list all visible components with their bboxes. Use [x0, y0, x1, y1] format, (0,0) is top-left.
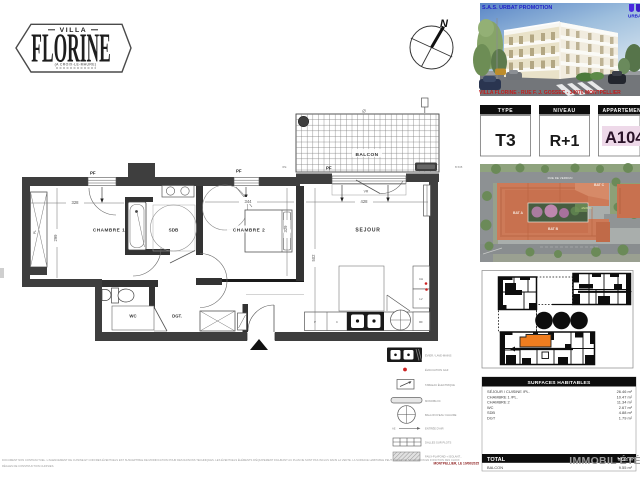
svg-text:BALCON: BALCON	[487, 465, 503, 470]
svg-text:4.88 m²: 4.88 m²	[619, 410, 633, 415]
svg-text:T3: T3	[495, 130, 516, 150]
svg-text:SURFACES HABITABLES: SURFACES HABITABLES	[528, 380, 591, 386]
svg-text:JARDIN: JARDIN	[581, 206, 592, 210]
svg-text:344: 344	[245, 199, 253, 204]
svg-text:FAUX-PLAFOND + ISOLANT...: FAUX-PLAFOND + ISOLANT...	[425, 455, 462, 459]
svg-text:BALLON D'EAU CHAUDE: BALLON D'EAU CHAUDE	[425, 413, 457, 417]
svg-text:299: 299	[53, 234, 58, 242]
svg-text:428: 428	[361, 199, 369, 204]
svg-text:S.A.S. URBAT PROMOTION: S.A.S. URBAT PROMOTION	[482, 5, 552, 11]
svg-text:A104: A104	[605, 129, 640, 147]
svg-text:R+1: R+1	[550, 133, 580, 150]
svg-text:11.34 m²: 11.34 m²	[617, 400, 633, 405]
svg-text:MONTPELLIER, LE 10/06/2025: MONTPELLIER, LE 10/06/2025	[433, 462, 479, 466]
svg-text:PF: PF	[236, 169, 242, 174]
svg-text:MONOBLOC: MONOBLOC	[425, 399, 441, 403]
svg-text:BAT A: BAT A	[513, 211, 524, 215]
svg-text:BALCON: BALCON	[356, 152, 379, 158]
svg-text:BAT C: BAT C	[594, 183, 605, 187]
svg-text:LV: LV	[419, 297, 422, 301]
svg-text:AE: AE	[392, 427, 396, 431]
svg-text:57.61 m²: 57.61 m²	[618, 457, 635, 462]
svg-text:328: 328	[72, 200, 80, 205]
svg-text:IPE: IPE	[282, 165, 287, 169]
svg-text:APPARTEMENT: APPARTEMENT	[602, 108, 640, 114]
svg-text:26.46 m²: 26.46 m²	[617, 389, 633, 394]
svg-text:DALLES SUR PLOTS: DALLES SUR PLOTS	[425, 441, 451, 445]
svg-text:329: 329	[283, 225, 288, 233]
svg-text:CHAMBRE 2: CHAMBRE 2	[233, 228, 265, 233]
svg-text:TOTAL: TOTAL	[487, 457, 506, 463]
svg-text:VILLA FLORINE - RUE F. J. GOSS: VILLA FLORINE - RUE F. J. GOSSEC - 34070…	[479, 90, 621, 96]
svg-text:BAT B: BAT B	[548, 227, 559, 231]
svg-text:502: 502	[311, 254, 316, 262]
svg-text:SÉJOUR / CUISINE /PL.: SÉJOUR / CUISINE /PL.	[487, 389, 530, 394]
svg-text:WC: WC	[487, 405, 494, 410]
svg-text:WC: WC	[129, 314, 136, 319]
svg-text:RUE DE VERDUN: RUE DE VERDUN	[548, 176, 573, 180]
svg-text:CHAMBRE 2: CHAMBRE 2	[487, 400, 510, 405]
svg-text:SDB: SDB	[487, 410, 495, 415]
svg-text:2.67 m²: 2.67 m²	[619, 405, 633, 410]
svg-text:PF: PF	[326, 166, 332, 171]
svg-text:SEJOUR: SEJOUR	[355, 228, 380, 234]
svg-text:10.47 m²: 10.47 m²	[617, 394, 633, 399]
svg-text:CH: CH	[419, 277, 423, 281]
svg-text:NIVEAU: NIVEAU	[553, 108, 576, 114]
svg-text:(A CROIX-LE-MAURE): (A CROIX-LE-MAURE)	[55, 63, 97, 67]
svg-text:RF: RF	[419, 320, 423, 324]
svg-text:CHAMBRE 1: CHAMBRE 1	[93, 228, 125, 233]
svg-text:9.55 m²: 9.55 m²	[619, 465, 633, 470]
svg-text:N: N	[440, 18, 449, 30]
svg-text:VR: VR	[364, 190, 369, 194]
svg-text:SDB: SDB	[169, 228, 179, 233]
svg-text:TYPE: TYPE	[498, 108, 514, 114]
svg-text:DGT: DGT	[487, 416, 496, 421]
svg-text:1.79 m²: 1.79 m²	[619, 416, 633, 421]
svg-text:B.508: B.508	[455, 165, 463, 169]
svg-text:PF: PF	[90, 171, 96, 176]
svg-text:PL: PL	[33, 230, 37, 234]
svg-text:CHAMBRE 1 /PL.: CHAMBRE 1 /PL.	[487, 394, 518, 399]
svg-text:URBAT: URBAT	[628, 14, 640, 19]
svg-text:DGT.: DGT.	[172, 314, 182, 319]
